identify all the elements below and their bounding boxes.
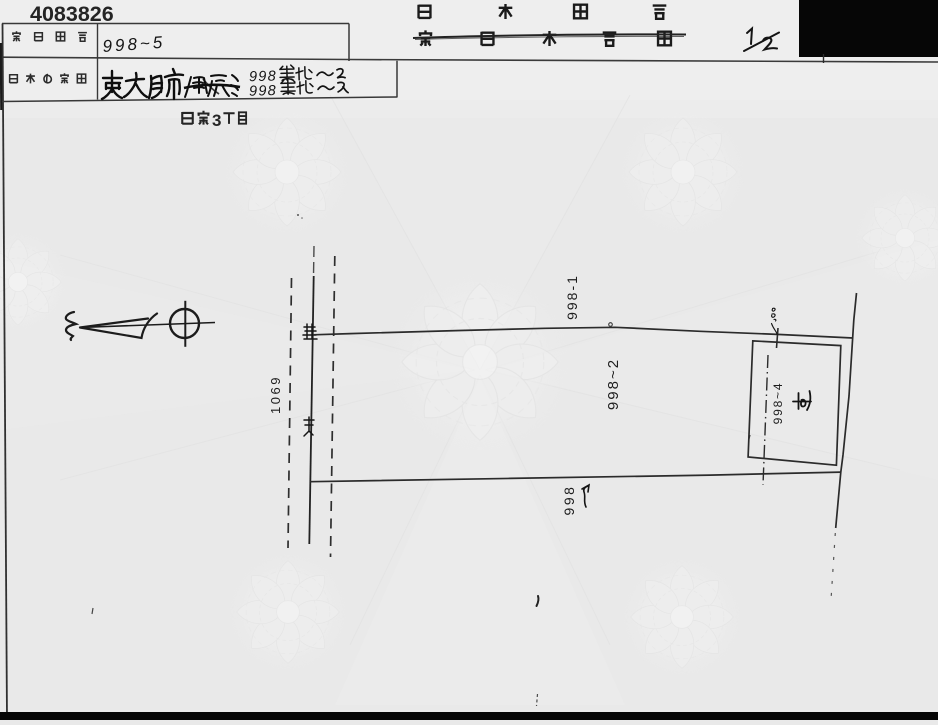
svg-text:998: 998 xyxy=(561,485,577,516)
svg-text:1069: 1069 xyxy=(268,375,283,414)
svg-text:998: 998 xyxy=(249,83,277,100)
svg-text:998-1: 998-1 xyxy=(564,274,580,320)
svg-text:998~2: 998~2 xyxy=(605,358,622,410)
svg-text:998~4: 998~4 xyxy=(771,382,785,425)
svg-text:3: 3 xyxy=(212,111,221,130)
svg-text:4083826: 4083826 xyxy=(30,2,114,26)
